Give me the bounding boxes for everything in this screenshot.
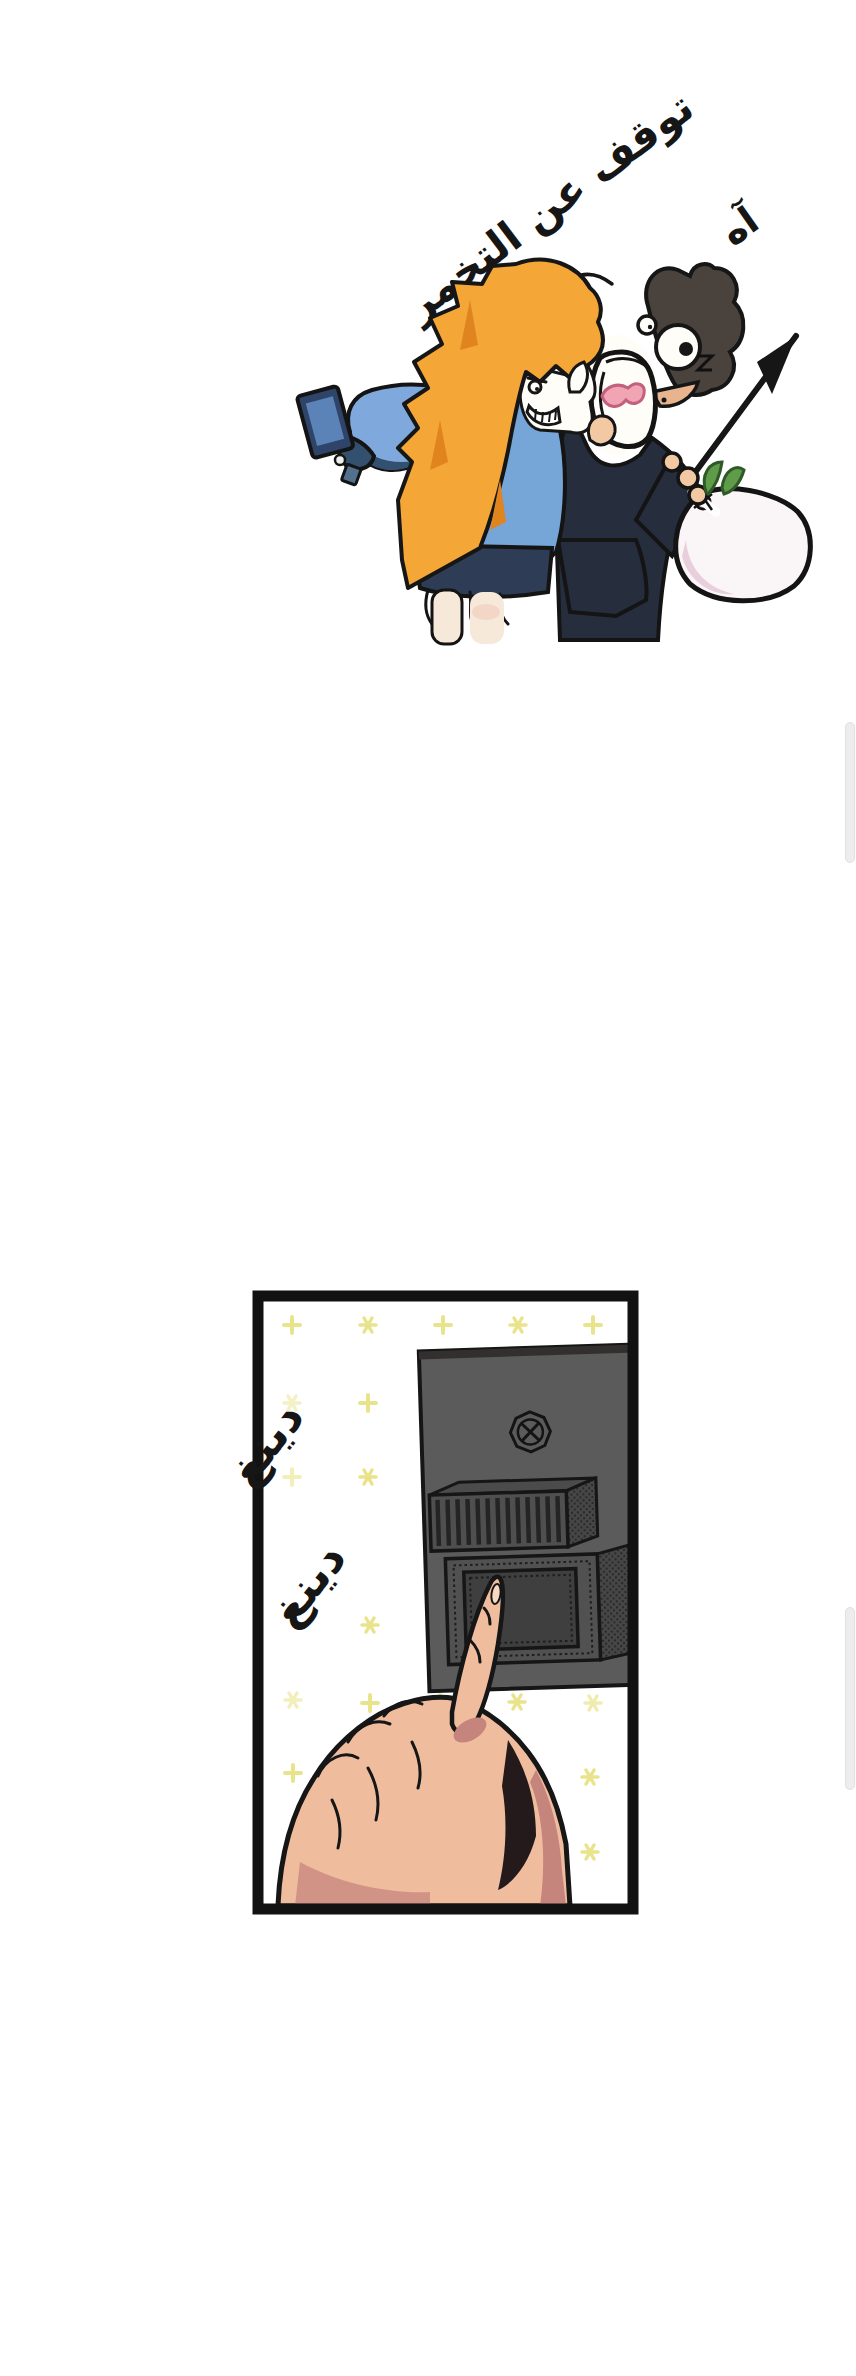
man-hair bbox=[646, 264, 743, 395]
speaker-grille bbox=[429, 1478, 598, 1551]
intercom-unit bbox=[419, 1345, 650, 1692]
girl-leg bbox=[432, 590, 462, 644]
man-tongue bbox=[602, 384, 644, 407]
man-ear bbox=[652, 382, 698, 406]
screw-icon bbox=[510, 1411, 551, 1452]
webtoon-page: توقف عن التخمر آه bbox=[0, 0, 856, 2376]
man-eye-big bbox=[656, 325, 700, 369]
scrollbar-thumb[interactable] bbox=[845, 722, 855, 863]
man-leg bbox=[558, 540, 647, 616]
man-eye-small bbox=[638, 316, 656, 334]
doorbell-panel: دينغ دينغ bbox=[216, 1296, 649, 1909]
girl-hand-grab bbox=[588, 416, 615, 445]
phone bbox=[297, 386, 354, 459]
comic-art: توقف عن التخمر آه bbox=[0, 0, 856, 2376]
top-illustration: توقف عن التخمر آه bbox=[297, 82, 811, 644]
scrollbar-thumb[interactable] bbox=[845, 1607, 855, 1790]
sfx-ah: آه bbox=[711, 196, 767, 255]
